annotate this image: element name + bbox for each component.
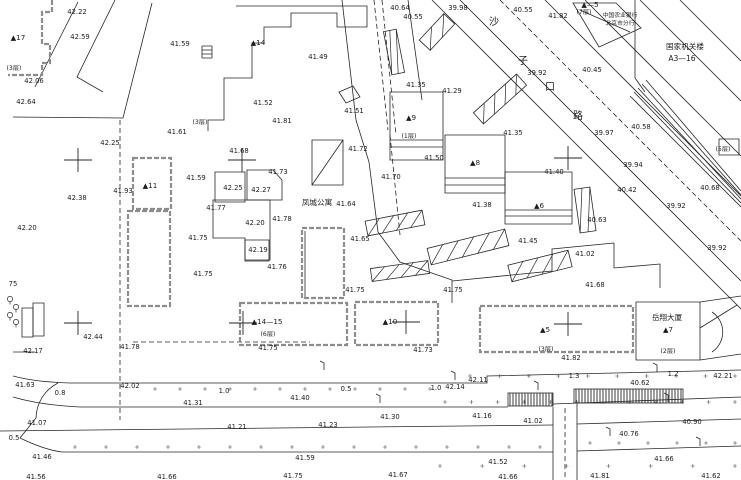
building-number-label: ▲9 [406,113,417,122]
elevation-label: 40.58 [631,123,650,131]
elevation-label: 42.59 [70,33,89,41]
building-number-label: ▲5 [540,325,550,334]
elevation-label: 40.90 [682,418,701,426]
road-tick [414,445,418,449]
elevation-label: 41.73 [268,168,287,176]
road-tick [507,445,511,449]
elevation-label: 41.93 [113,187,132,195]
survey-cross [554,312,582,336]
road-tick [646,441,650,445]
plan-line [208,6,367,131]
slope-band [508,250,572,281]
elevation-label: 41.02 [523,417,542,425]
road-tick [438,464,442,468]
road-tick [290,445,294,449]
gov-building-code: A3—16 [668,54,695,63]
elevation-label: 40.76 [619,430,638,438]
building-number-label: ▲6 [534,201,545,210]
elevation-label: 42.20 [245,219,264,227]
elevation-label: 41.56 [26,473,45,480]
elevation-label: 41.40 [544,168,563,176]
plan-line [642,84,741,195]
elevation-label: 41.35 [406,81,425,89]
slope-band [383,29,404,75]
road-tick [228,445,232,449]
elevation-label: 41.40 [290,394,309,402]
pole-symbol [696,437,700,446]
tree-symbol [7,312,12,317]
elevation-label: 41.75 [258,344,277,352]
elevation-label: 41.66 [654,455,673,463]
plan-dashed-line [374,0,388,130]
plan-line [680,0,741,61]
elevation-label: 40.62 [630,379,649,387]
elevation-label: 41.52 [253,99,272,107]
tree-symbol [7,296,12,301]
road-tick [675,441,679,445]
road-tick [704,374,708,378]
road-tick [733,441,737,445]
plan-line [13,376,452,383]
elevation-label: 41.82 [548,12,567,20]
plan-line [202,46,212,58]
plan-line [342,0,369,162]
elevation-label: 39.97 [594,129,613,137]
road-tick [328,387,332,391]
pole-symbol [376,394,380,403]
elevation-label: 40.45 [582,66,601,74]
elevation-label: 41.46 [32,453,51,461]
elevation-label: 41.64 [336,200,355,208]
road-tick [588,441,592,445]
elevation-label: 41.16 [472,412,491,420]
road-tick [153,387,157,391]
road-tick [538,445,542,449]
elevation-label: 42.64 [16,98,35,106]
road-tick [480,464,484,468]
pole-symbol [320,361,324,370]
elevation-label: 41.31 [183,399,202,407]
plan-line [577,419,741,424]
elevation-label: 42.27 [251,186,270,194]
elevation-label: 41.72 [348,145,367,153]
plan-line [614,243,660,288]
tree-symbol [13,319,18,324]
road-tick [476,445,480,449]
elevation-label: 41.76 [267,263,286,271]
elevation-label: 41.67 [388,471,407,479]
building-number-label: ▲—5 [581,0,598,9]
pole-symbol [451,371,455,380]
elevation-label: 41.75 [283,472,302,480]
road-tick [496,400,500,404]
tower-name: 岳翔大厦 [652,312,683,322]
elevation-label: 42.25 [100,139,119,147]
elevation-label: 41.81 [272,117,291,125]
floor-count-label: (3层) [7,65,22,72]
elevation-label: 41.68 [229,147,248,155]
road-tick [166,445,170,449]
elevation-label: 41.66 [498,473,517,480]
elevation-label: 0.8 [55,389,66,397]
road-tick [253,387,257,391]
road-tick [586,374,590,378]
elevation-label: 42.20 [17,224,36,232]
road-tick [278,387,282,391]
elevation-label: 39.98 [448,4,467,12]
survey-cross [64,311,92,335]
plan-line [22,308,33,337]
road-tick [203,387,207,391]
elevation-label: 41.02 [575,250,594,258]
plan-line [700,305,737,328]
elevation-label: 41.59 [170,40,189,48]
bank-name-line2: 北京市分行 [606,19,635,27]
building-number-label: ▲10 [383,317,398,326]
elevation-label: 39.92 [707,244,726,252]
road-tick [522,400,526,404]
crosswalk-hatch [508,393,553,406]
plan-line [712,312,723,352]
street-name-char: 子 [518,55,528,67]
road-tick [445,445,449,449]
road-tick [303,387,307,391]
plan-line [390,92,443,160]
elevation-label: 41.49 [308,53,327,61]
road-tick [615,374,619,378]
building-number-label: ▲7 [663,325,673,334]
road-tick [733,374,737,378]
plan-line [20,438,553,452]
pole-symbol [606,427,610,436]
elevation-label: 42.02 [120,382,139,390]
plan-line [312,140,343,185]
road-tick [321,445,325,449]
slope-band [427,229,509,265]
elevation-label: 0.5 [341,385,352,393]
elevation-label: 41.68 [585,281,604,289]
elevation-label: 42.22 [67,8,86,16]
elevation-label: 41.63 [15,381,34,389]
elevation-label: 75 [9,280,18,288]
elevation-label: 42.06 [24,77,43,85]
road-tick [649,464,653,468]
elevation-label: 39.92 [666,202,685,210]
plan-line [0,425,553,431]
road-tick [704,441,708,445]
road-tick [353,387,357,391]
elevation-label: 41.61 [167,128,186,136]
road-tick [733,400,737,404]
elevation-label: 39.92 [527,69,546,77]
elevation-label: 41.78 [272,215,291,223]
elevation-label: 41.21 [227,423,246,431]
elevation-label: 41.73 [413,346,432,354]
pole-symbol [653,363,657,372]
elevation-label: 42.14 [445,383,464,391]
floor-count-label: (2层) [661,348,676,355]
road-tick [197,445,201,449]
slope-band [473,74,526,124]
building-number-label: ▲8 [470,158,481,167]
floor-count-label: (7层) [577,9,592,16]
road-tick [645,374,649,378]
floor-count-label: (6层) [261,331,276,338]
road-tick [469,400,473,404]
elevation-label: 41.65 [350,235,369,243]
elevation-label: 41.59 [295,454,314,462]
elevation-label: 41.52 [488,458,507,466]
building-number-label: ▲14 [251,38,266,47]
building-number-label: ▲17 [11,33,26,42]
building-number-label: ▲14—15 [251,317,282,326]
plan-dashed-line [382,0,396,135]
site-plan-svg: 42.2242.5942.0642.6441.5941.6141.4941.52… [0,0,741,480]
elevation-label: 41.66 [157,473,176,480]
elevation-label: 42.21 [713,372,732,380]
survey-cross [64,148,92,172]
elevation-label: 41.07 [27,419,46,427]
parcel-boundary [302,228,344,298]
survey-cross [554,146,582,170]
plan-line [33,303,44,336]
elevation-label: 41.62 [701,472,720,480]
elevation-label: 41.59 [186,174,205,182]
slope-band [419,14,455,51]
elevation-label: 42.17 [23,347,42,355]
elevation-label: 41.23 [318,421,337,429]
street-name-char: 路 [573,109,583,122]
road-tick [73,445,77,449]
elevation-label: 41.51 [344,107,363,115]
building-number-label: ▲11 [143,181,158,190]
slope-band [370,261,429,282]
elevation-label: 41.77 [206,204,225,212]
road-tick [383,445,387,449]
elevation-label: 41.29 [442,87,461,95]
plan-line [339,86,360,103]
elevation-label: 42.38 [67,194,86,202]
road-tick [617,441,621,445]
road-tick [352,445,356,449]
road-tick [104,445,108,449]
floor-count-label: (3层) [193,119,208,126]
elevation-label: 41.82 [561,354,580,362]
elevation-label: 40.42 [617,186,636,194]
elevation-label: 41.75 [345,286,364,294]
plan-line [577,446,741,451]
floor-count-label: (1层) [402,133,417,140]
road-tick [443,400,447,404]
elevation-label: 42.44 [83,333,102,341]
floor-count-label: (5层) [716,146,731,153]
pole-symbol [534,381,538,390]
elevation-label: 41.30 [380,413,399,421]
road-tick [259,445,263,449]
slope-band [365,210,425,236]
tree-symbol [13,304,18,309]
elevation-label: 41.70 [381,173,400,181]
site-plan: 42.2242.5942.0642.6441.5941.6141.4941.52… [0,0,741,480]
elevation-label: 40.55 [403,13,422,21]
elevation-label: 39.94 [623,161,642,169]
road-tick [403,387,407,391]
plan-line [700,354,741,360]
elevation-label: 1.0 [219,387,230,395]
slope-band [574,187,596,233]
elevation-label: 40.64 [390,4,409,12]
plan-line [452,243,614,281]
street-name-char: 口 [545,82,555,93]
elevation-label: 41.45 [518,237,537,245]
elevation-label: 40.63 [587,216,606,224]
elevation-label: 1.3 [569,372,580,380]
bank-name-line1: 中国农业银行 [603,11,638,19]
elevation-label: 41.75 [443,286,462,294]
parcel-boundary [128,211,170,306]
plan-line [13,397,508,407]
elevation-label: 40.68 [700,184,719,192]
elevation-label: 42.25 [223,184,242,192]
road-tick [607,464,611,468]
gov-building-name: 国家机关楼 [666,41,704,51]
elevation-label: 41.50 [424,154,443,162]
elevation-label: 41.38 [472,201,491,209]
road-tick [522,464,526,468]
plan-line [545,0,741,196]
apartment-name: 凤城公寓 [302,197,333,207]
street-name-char: 沙 [489,16,499,28]
elevation-label: 41.75 [188,234,207,242]
floor-count-label: (3层) [539,346,554,353]
plan-line [646,80,741,191]
plan-line [369,162,452,303]
elevation-label: 41.78 [120,343,139,351]
road-tick [707,400,711,404]
elevation-label: 1.0 [431,384,442,392]
elevation-label: 42.19 [248,246,267,254]
plan-dashed-line [390,135,400,235]
plan-line [452,370,741,383]
road-tick [733,464,737,468]
parcel-boundary [480,306,633,352]
road-tick [691,464,695,468]
elevation-label: 1.2 [668,370,679,378]
road-tick [178,387,182,391]
elevation-label: 41.75 [193,270,212,278]
plan-line [700,296,741,302]
elevation-label: 42.11 [468,376,487,384]
elevation-label: 40.55 [513,6,532,14]
elevation-label: 41.35 [503,129,522,137]
road-tick [378,387,382,391]
road-tick [135,445,139,449]
road-tick [497,374,501,378]
elevation-label: 0.5 [9,434,20,442]
elevation-label: 41.81 [590,472,609,480]
